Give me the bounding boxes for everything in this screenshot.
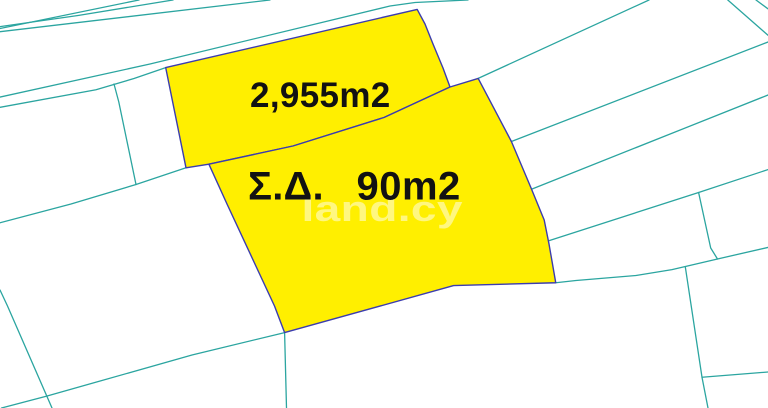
svg-text:Σ.Δ.: Σ.Δ.: [248, 165, 324, 209]
svg-text:2,955m2: 2,955m2: [250, 76, 391, 115]
svg-text:90m2: 90m2: [357, 165, 461, 209]
